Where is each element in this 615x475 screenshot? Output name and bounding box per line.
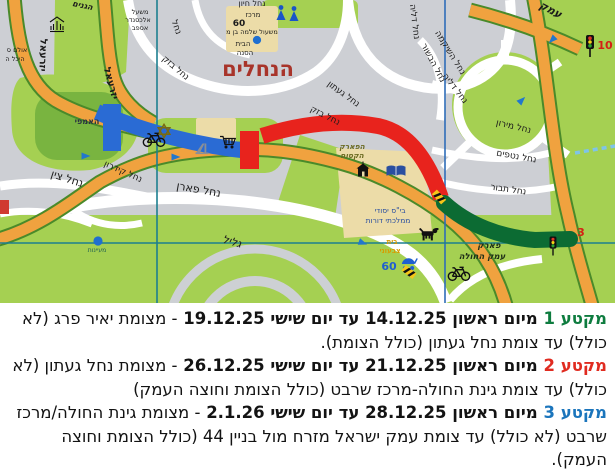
map-label: יזרעאל <box>36 38 48 71</box>
building-red <box>0 200 9 214</box>
notice-text: מקטע 1 מיום ראשון 14.12.25 עד יום שישי 1… <box>0 303 615 472</box>
map-label: משעל <box>132 8 149 16</box>
map-label: פארק <box>477 241 501 251</box>
map-label: הנחלים <box>222 57 294 81</box>
map-label: מעיינות <box>88 247 107 254</box>
notice-section: מקטע 3 מיום ראשון 28.12.25 עד יום שישי 2… <box>8 401 607 472</box>
neighborhood-map: הנחליםהגניםיזרעאליזרעאלאולם סהיכל המשעלא… <box>0 0 615 303</box>
segment-tag: מקטע 3 <box>543 403 607 422</box>
closure-dates: מיום ראשון 14.12.25 עד יום שישי 19.12.25 <box>177 309 543 328</box>
map-label: מרכז <box>246 11 261 19</box>
segment-tag: מקטע 1 <box>543 309 607 328</box>
map-label: נחל חיון <box>239 0 266 8</box>
map-label: משעול שלמה בן מ <box>226 28 278 36</box>
map-label: 60 <box>381 260 397 273</box>
map-canvas: הנחליםהגניםיזרעאליזרעאלאולם סהיכל המשעלא… <box>0 0 615 303</box>
map-label: 10 <box>597 39 613 52</box>
map-label: בי"ס יסודי <box>374 206 406 215</box>
map-label: בית <box>386 238 397 246</box>
map-label: ממלכתי דורות <box>366 216 411 225</box>
notice-section: מקטע 2 מיום ראשון 21.12.25 עד יום שישי 2… <box>8 354 607 401</box>
segment-1-marker <box>103 104 121 151</box>
book-icon <box>387 166 406 176</box>
map-label: הקסום <box>340 151 364 160</box>
segment-tag: מקטע 2 <box>543 356 607 375</box>
map-label: הפארק <box>339 142 365 151</box>
map-label: עמק החולה <box>459 252 506 262</box>
map-label: צבעוני <box>379 247 400 255</box>
closure-dates: מיום ראשון 28.12.25 עד יום שישי 2.1.26 <box>200 403 543 422</box>
segment-2-marker <box>240 131 259 169</box>
map-label: אולם ס <box>7 46 27 54</box>
map-label: הבית <box>236 40 251 48</box>
notice-section: מקטע 1 מיום ראשון 14.12.25 עד יום שישי 1… <box>8 307 607 354</box>
poi-dot-icon <box>93 236 102 245</box>
map-label: הסנה <box>237 49 254 57</box>
closure-dates: מיום ראשון 21.12.25 עד יום שישי 26.12.25 <box>177 356 543 375</box>
map-label: האמפי <box>75 117 100 126</box>
road-closure-flyer: הנחליםהגניםיזרעאליזרעאלאולם סהיכל המשעלא… <box>0 0 615 475</box>
map-label: אלכסנדר <box>125 16 151 24</box>
map-label: 3 <box>577 226 585 239</box>
map-label: היכל ה <box>5 55 24 63</box>
map-label: אספב <box>132 24 148 32</box>
poi-dot-icon <box>253 36 261 44</box>
